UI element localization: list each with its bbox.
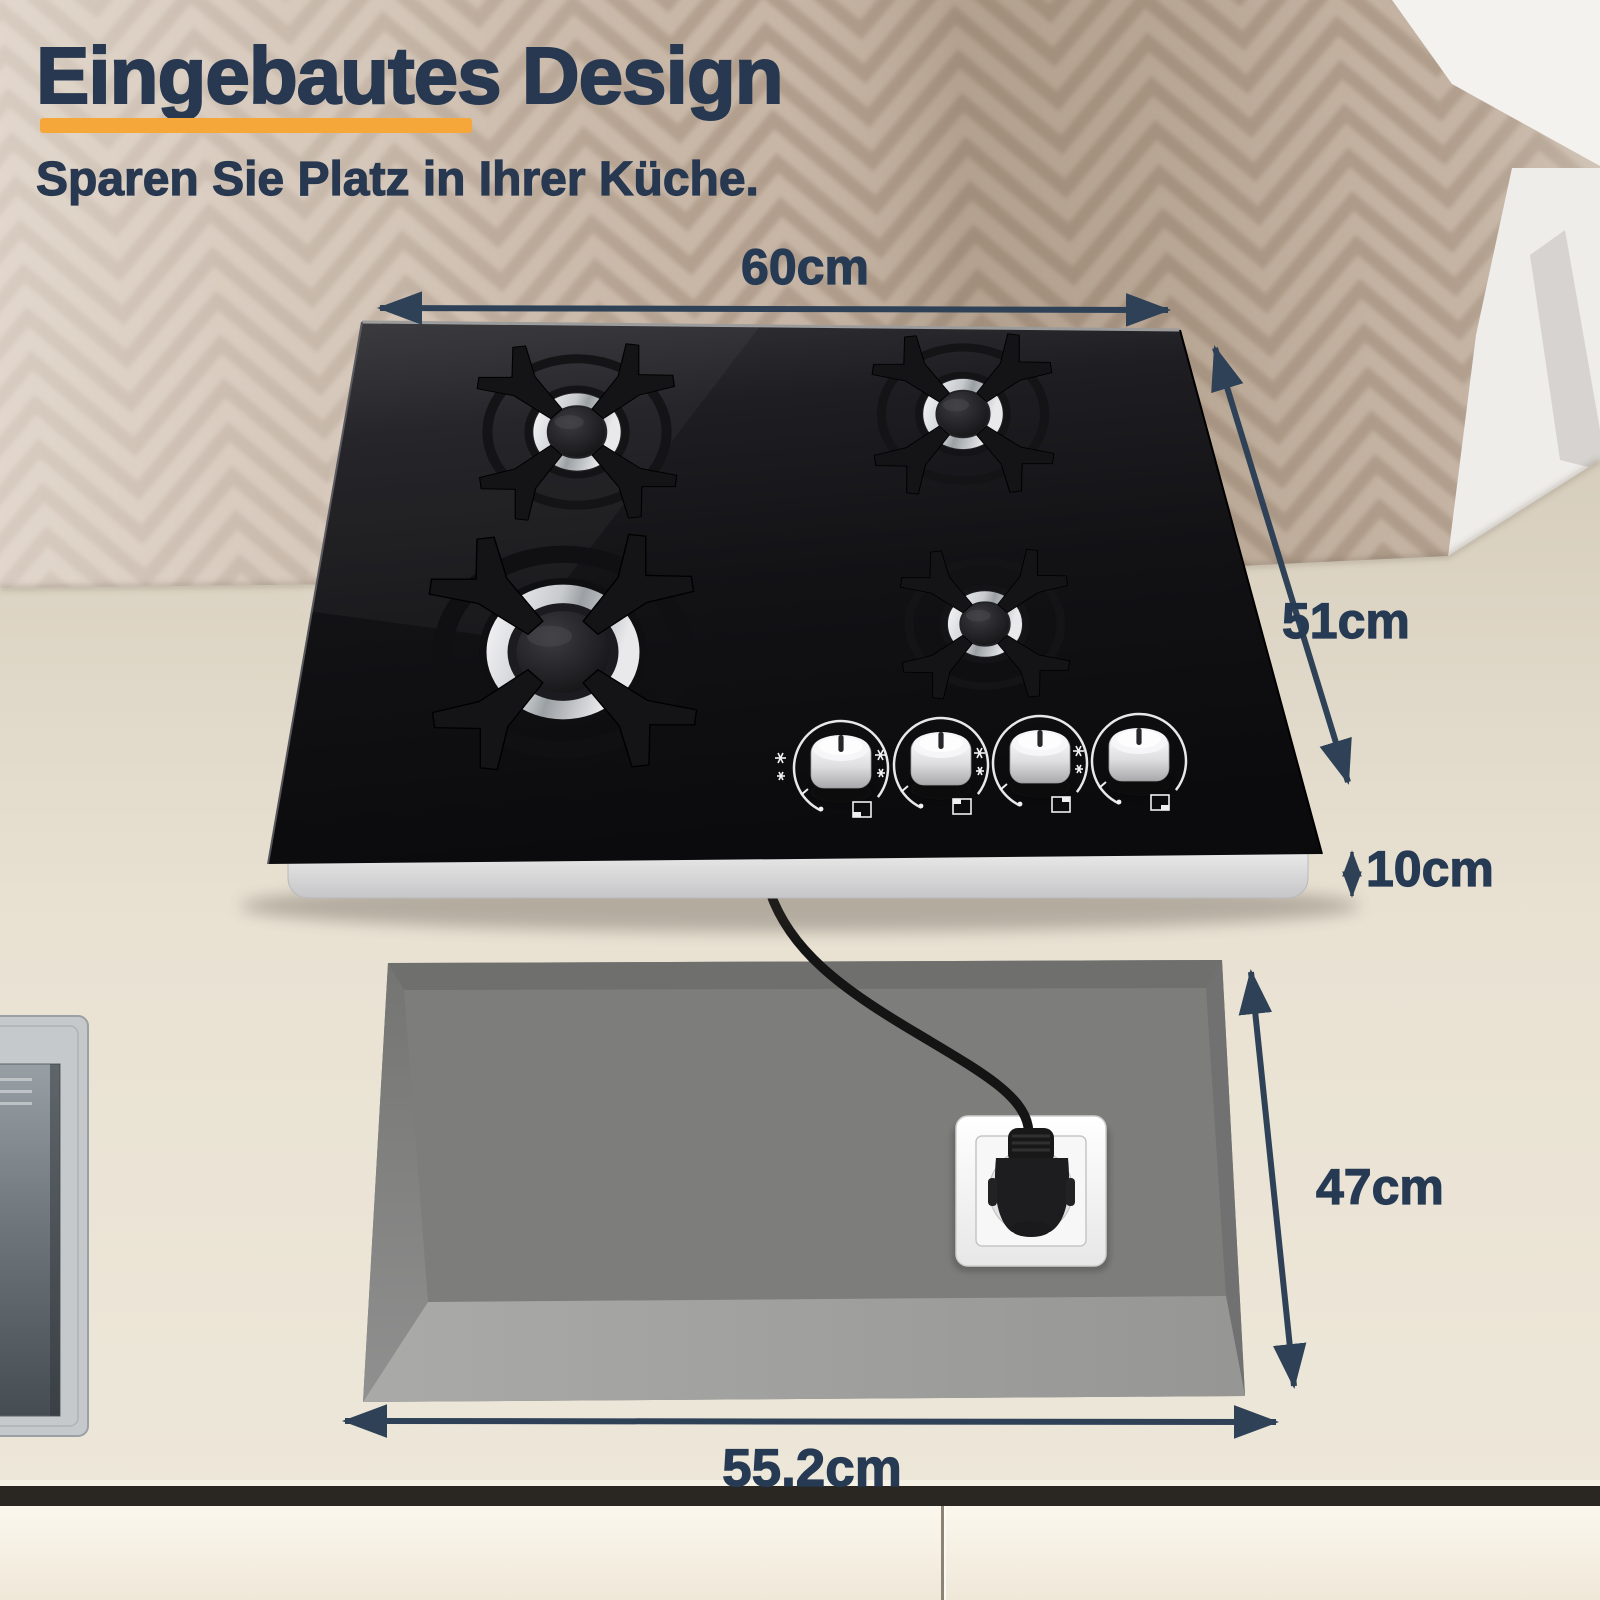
arrow-width-60cm <box>380 308 1168 310</box>
page-title: Eingebautes Design <box>36 36 783 116</box>
arrow-cutout-depth-47cm <box>1251 972 1294 1386</box>
label-cooktop-height: 10cm <box>1366 844 1494 894</box>
arrow-depth-51cm <box>1215 348 1348 782</box>
arrow-cutout-width-55.2cm <box>345 1421 1276 1422</box>
label-cutout-depth: 47cm <box>1316 1162 1444 1212</box>
label-cutout-width: 55.2cm <box>722 1442 902 1495</box>
label-cooktop-depth: 51cm <box>1282 596 1410 646</box>
label-cooktop-width: 60cm <box>741 242 869 292</box>
page-subtitle: Sparen Sie Platz in Ihrer Küche. <box>36 156 759 204</box>
product-dimension-diagram: Eingebautes Design Sparen Sie Platz in I… <box>0 0 1600 1600</box>
title-accent-bar <box>40 118 472 133</box>
